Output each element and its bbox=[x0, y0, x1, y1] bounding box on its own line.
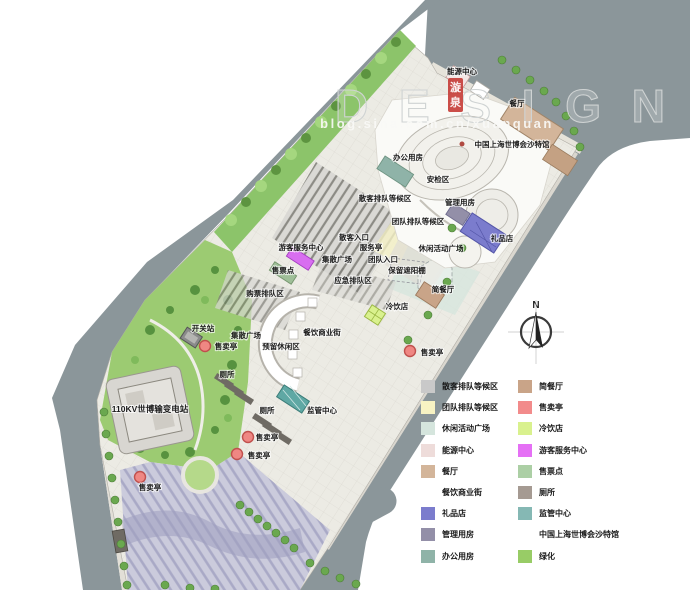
legend-item: 售卖亭 bbox=[518, 397, 673, 418]
legend-swatch bbox=[421, 465, 435, 478]
north-compass: N bbox=[508, 300, 564, 364]
legend-item: 中国上海世博会沙特馆 bbox=[518, 524, 673, 545]
legend-swatch bbox=[518, 401, 532, 414]
legend-swatch bbox=[518, 550, 532, 563]
legend-item: 售票点 bbox=[518, 461, 673, 482]
legend-item: 团队排队等候区 bbox=[421, 397, 518, 418]
label-service-kiosk: 服务亭 bbox=[360, 242, 383, 252]
label-emergency-queue: 应急排队区 bbox=[334, 275, 372, 285]
legend-swatch bbox=[421, 550, 435, 563]
legend-item: 餐厅 bbox=[421, 461, 518, 482]
legend-item: 能源中心 bbox=[421, 440, 518, 461]
legend-item: 厕所 bbox=[518, 482, 673, 503]
legend-label: 绿化 bbox=[539, 551, 555, 562]
legend-swatch bbox=[518, 465, 532, 478]
legend-label: 售卖亭 bbox=[539, 402, 563, 413]
label-security-area: 安检区 bbox=[427, 174, 450, 184]
label-gather-plaza-a: 集散广场 bbox=[321, 254, 352, 264]
legend-item: 散客排队等候区 bbox=[421, 376, 518, 397]
svg-text:漩: 漩 bbox=[450, 80, 462, 94]
label-kiosk-b: 售卖亭 bbox=[421, 347, 444, 357]
legend-label: 休闲活动广场 bbox=[442, 423, 490, 434]
label-management: 管理用房 bbox=[445, 197, 475, 207]
legend-swatch bbox=[421, 486, 435, 499]
legend-item: 休闲活动广场 bbox=[421, 418, 518, 439]
legend-item: 管理用房 bbox=[421, 524, 518, 545]
legend-swatch bbox=[518, 444, 532, 457]
legend-swatch bbox=[421, 507, 435, 520]
label-gift-shop: 礼品店 bbox=[491, 233, 514, 243]
label-group-queue: 团队排队等候区 bbox=[392, 216, 445, 226]
label-kiosk-d: 售卖亭 bbox=[248, 450, 271, 460]
legend-label: 管理用房 bbox=[442, 529, 474, 540]
legend-label: 售票点 bbox=[539, 466, 563, 477]
round-lawn bbox=[183, 458, 217, 492]
label-group-entrance: 团队入口 bbox=[368, 254, 398, 264]
road-intersection-notch bbox=[615, 139, 678, 200]
legend-item: 绿化 bbox=[518, 546, 673, 567]
label-kiosk-c: 售卖亭 bbox=[256, 432, 279, 442]
svg-text:泉: 泉 bbox=[449, 95, 462, 109]
legend-swatch bbox=[421, 401, 435, 414]
label-cold-drink: 冷饮店 bbox=[386, 301, 409, 311]
legend-swatch bbox=[421, 380, 435, 393]
legend-item: 冷饮店 bbox=[518, 418, 673, 439]
label-supervision: 监管中心 bbox=[307, 405, 337, 415]
label-ticket-queue: 购票排队区 bbox=[246, 288, 284, 298]
label-substation: 110KV世博输变电站 bbox=[112, 404, 189, 414]
label-individual-entrance: 散客入口 bbox=[339, 232, 369, 242]
legend-swatch bbox=[421, 444, 435, 457]
label-energy-center: 能源中心 bbox=[447, 66, 477, 76]
label-visitor-center: 游客服务中心 bbox=[279, 242, 324, 252]
legend-swatch bbox=[518, 422, 532, 435]
legend-label: 散客排队等候区 bbox=[442, 381, 498, 392]
label-ticket-point: 售票点 bbox=[272, 265, 295, 275]
legend-item: 游客服务中心 bbox=[518, 440, 673, 461]
label-leisure-plaza: 休闲活动广场 bbox=[418, 243, 464, 253]
legend-swatch bbox=[518, 507, 532, 520]
label-office: 办公用房 bbox=[393, 152, 423, 162]
label-switch-station: 开关站 bbox=[192, 323, 215, 333]
logo-stamp: 漩 泉 bbox=[448, 78, 463, 112]
legend: 散客排队等候区 简餐厅 团队排队等候区 售卖亭 休闲活动广场 冷饮店 能源中心 … bbox=[421, 376, 673, 567]
legend-label: 能源中心 bbox=[442, 445, 474, 456]
legend-item: 简餐厅 bbox=[518, 376, 673, 397]
legend-label: 游客服务中心 bbox=[539, 445, 587, 456]
legend-item: 办公用房 bbox=[421, 546, 518, 567]
legend-item: 礼品店 bbox=[421, 503, 518, 524]
legend-label: 礼品店 bbox=[442, 508, 466, 519]
label-reserved-leisure: 预留休闲区 bbox=[262, 341, 300, 351]
watermark-subtitle: blog.sina.com.cn/xuanquan bbox=[320, 116, 554, 131]
label-kiosk-a: 售卖亭 bbox=[215, 341, 238, 351]
legend-label: 冷饮店 bbox=[539, 423, 563, 434]
legend-swatch bbox=[421, 422, 435, 435]
site-plan-image: DESIGN blog.sina.com.cn/xuanquan 漩 泉 能源中… bbox=[0, 0, 690, 590]
legend-swatch bbox=[518, 528, 532, 541]
legend-label: 简餐厅 bbox=[539, 381, 563, 392]
label-canopy: 保留遮阳棚 bbox=[387, 265, 426, 275]
legend-label: 办公用房 bbox=[442, 551, 474, 562]
label-toilet-a: 厕所 bbox=[220, 369, 235, 379]
label-pavilion: 中国上海世博会沙特馆 bbox=[475, 139, 550, 149]
label-food-street: 餐饮商业街 bbox=[302, 327, 341, 337]
label-kiosk-e: 售卖亭 bbox=[139, 482, 162, 492]
label-gather-plaza-b: 集散广场 bbox=[230, 330, 261, 340]
legend-swatch bbox=[421, 528, 435, 541]
legend-item: 餐饮商业街 bbox=[421, 482, 518, 503]
legend-label: 餐厅 bbox=[442, 466, 458, 477]
legend-label: 监管中心 bbox=[539, 508, 571, 519]
label-toilet-b: 厕所 bbox=[260, 405, 275, 415]
label-restaurant: 餐厅 bbox=[509, 98, 525, 108]
pavilion-marker-dot bbox=[460, 142, 465, 147]
legend-swatch bbox=[518, 486, 532, 499]
legend-label: 中国上海世博会沙特馆 bbox=[539, 529, 619, 540]
legend-swatch bbox=[518, 380, 532, 393]
legend-label: 厕所 bbox=[539, 487, 555, 498]
label-snack-bar: 简餐厅 bbox=[432, 284, 455, 294]
legend-label: 团队排队等候区 bbox=[442, 402, 498, 413]
legend-item: 监管中心 bbox=[518, 503, 673, 524]
legend-label: 餐饮商业街 bbox=[442, 487, 482, 498]
label-individual-queue: 散客排队等候区 bbox=[359, 193, 412, 203]
